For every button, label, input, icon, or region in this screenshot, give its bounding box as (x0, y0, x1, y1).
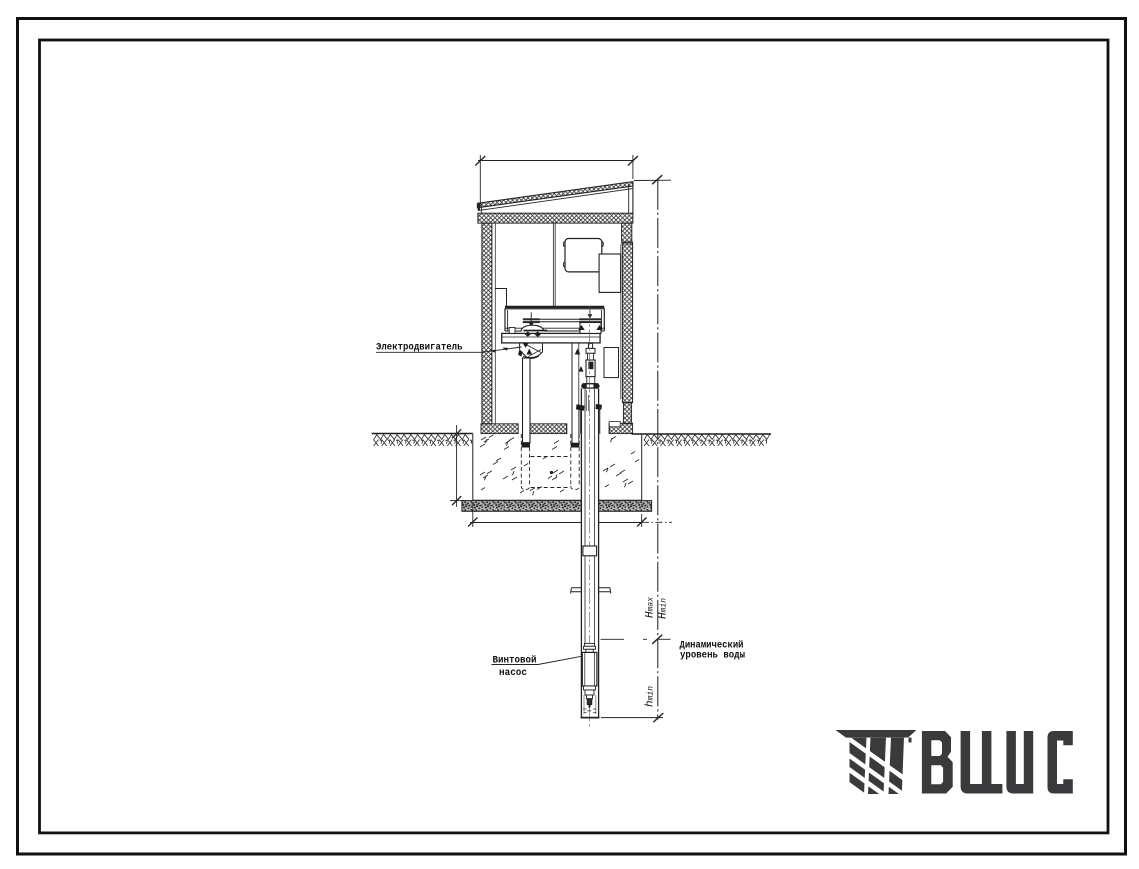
svg-text:hmin: hmin (645, 686, 657, 707)
svg-text:уровень воды: уровень воды (680, 651, 745, 662)
svg-text:насос: насос (499, 667, 527, 679)
svg-text:Hmin: Hmin (658, 598, 670, 619)
svg-text:Электродвигатель: Электродвигатель (376, 342, 463, 354)
svg-text:Hmax: Hmax (645, 597, 657, 618)
